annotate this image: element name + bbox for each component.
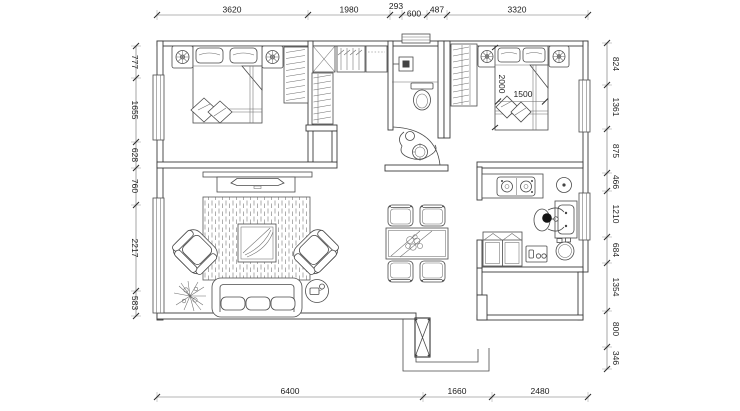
closet xyxy=(312,46,387,124)
seat-cushion xyxy=(271,297,295,310)
window-right-kitchen xyxy=(579,193,590,240)
shower-icon xyxy=(393,57,413,71)
pillow xyxy=(498,48,520,62)
vanity-basin xyxy=(393,127,440,165)
dim-label: 1980 xyxy=(340,5,359,15)
dining-chair xyxy=(420,205,445,226)
dim-label: 2480 xyxy=(531,386,550,396)
window-left-bedroom1 xyxy=(153,75,164,140)
dining-chair xyxy=(388,205,413,226)
table-lamp-icon xyxy=(553,50,565,63)
plant xyxy=(174,281,206,311)
window-right-bedroom2 xyxy=(579,80,590,132)
wall-bathroom-right xyxy=(438,41,444,138)
hanger-rod-top xyxy=(337,46,365,72)
dim-label: 583 xyxy=(130,296,140,310)
wall-bathroom-bottom xyxy=(385,165,448,171)
table-lamp-icon xyxy=(481,50,493,63)
dim-label: 760 xyxy=(130,179,140,193)
side-table xyxy=(306,280,329,303)
pillow xyxy=(196,48,223,63)
wall-hall-left-lower xyxy=(477,295,487,320)
dim-label: 824 xyxy=(611,57,621,71)
bed-length-label: 2000 xyxy=(497,75,507,94)
living-room xyxy=(169,172,342,317)
dimension-top: 3620 1980 293 600 487 3320 xyxy=(154,1,591,20)
dim-label: 1361 xyxy=(611,98,621,117)
entry xyxy=(415,318,430,357)
dim-label: 1655 xyxy=(130,101,140,120)
dim-label: 3620 xyxy=(223,5,242,15)
dim-label: 1354 xyxy=(611,278,621,297)
dining-area xyxy=(386,205,448,282)
nightstand xyxy=(172,46,193,68)
seat-cushion xyxy=(246,297,270,310)
toilet xyxy=(411,83,433,110)
shelf-unit xyxy=(366,46,387,72)
wall-kitchen-left-lower xyxy=(477,240,482,268)
wall-top xyxy=(157,41,588,46)
dim-label: 875 xyxy=(611,144,621,158)
dim-label: 777 xyxy=(130,55,140,69)
double-bed xyxy=(191,46,262,123)
sink xyxy=(550,201,577,238)
dim-label: 684 xyxy=(611,243,621,257)
bed-width-label: 1500 xyxy=(514,89,533,99)
dining-table xyxy=(386,228,448,259)
wall-closet-connector xyxy=(332,131,337,162)
basin-stool xyxy=(556,238,574,260)
wardrobe xyxy=(451,44,477,106)
floor-plan-page: 3620 1980 293 600 487 3320 777 1655 628 … xyxy=(0,0,740,411)
coffee-table xyxy=(238,224,276,262)
tv-shelf xyxy=(203,172,312,177)
cabinet-x-box xyxy=(313,46,335,72)
refrigerator xyxy=(483,232,522,266)
table-lamp-icon xyxy=(176,50,189,64)
pillow xyxy=(523,48,545,62)
dim-label: 1660 xyxy=(448,386,467,396)
nightstand xyxy=(549,46,569,67)
dim-label: 1210 xyxy=(611,205,621,224)
dining-chair xyxy=(388,261,413,282)
dim-label: 466 xyxy=(611,175,621,189)
hanger-rod-side xyxy=(312,73,333,124)
wall-kitchen-left-upper xyxy=(477,167,482,200)
small-appliance xyxy=(526,246,547,262)
dim-label: 2217 xyxy=(130,239,140,258)
seat-cushion xyxy=(221,297,245,310)
stove xyxy=(497,177,535,196)
dimension-bottom: 6400 1660 2480 xyxy=(154,386,591,402)
floor-drain-icon xyxy=(557,178,572,193)
dimension-left: 777 1655 628 760 2217 583 xyxy=(130,43,141,319)
bedroom-1 xyxy=(172,46,308,123)
wall-right-lower xyxy=(578,272,583,320)
wall-bedroom2-left xyxy=(444,41,450,138)
floor-plan-canvas: 3620 1980 293 600 487 3320 777 1655 628 … xyxy=(0,0,740,411)
nightstand xyxy=(262,46,283,68)
wardrobe xyxy=(284,47,308,103)
wall-hall-bottom xyxy=(477,315,583,320)
dim-label: 487 xyxy=(430,5,444,15)
table-lamp-icon xyxy=(266,50,279,64)
wall-bedroom2-bottom xyxy=(477,162,583,168)
sofa xyxy=(212,278,302,317)
dim-label: 628 xyxy=(130,148,140,162)
dim-label: 293 xyxy=(389,1,403,11)
wall-closet-bottom xyxy=(306,125,337,131)
dim-label: 6400 xyxy=(281,386,300,396)
window-left-living xyxy=(153,198,164,313)
wall-hall-left-upper xyxy=(477,268,482,295)
dim-label: 346 xyxy=(611,351,621,365)
entry-door xyxy=(415,318,430,357)
wall-kitchen-bottom xyxy=(482,267,583,272)
pillow xyxy=(230,48,257,63)
bathroom xyxy=(392,57,440,165)
dim-label: 600 xyxy=(407,9,421,19)
dining-chair xyxy=(420,261,445,282)
vent-shaft xyxy=(402,34,430,43)
wall-bathroom-left xyxy=(388,41,393,130)
dimension-right: 824 1361 875 466 1210 684 1354 800 346 xyxy=(602,40,621,372)
dim-label: 3320 xyxy=(508,5,527,15)
wall-living-top xyxy=(157,162,337,168)
person-figure xyxy=(399,132,436,160)
dim-label: 800 xyxy=(611,322,621,336)
bedroom-2: 2000 1500 xyxy=(451,44,569,130)
kitchen xyxy=(482,174,577,266)
